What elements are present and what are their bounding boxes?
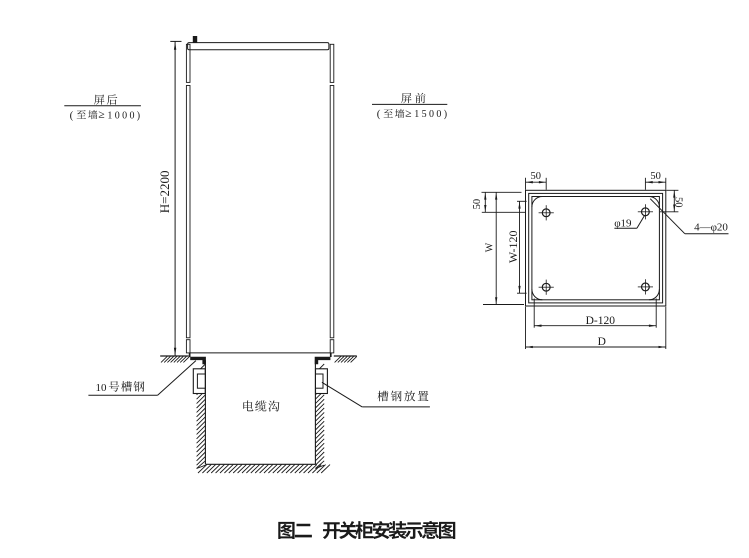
svg-text:φ19: φ19 xyxy=(614,217,632,229)
svg-text:50: 50 xyxy=(673,197,684,208)
svg-text:D-120: D-120 xyxy=(586,315,616,327)
svg-text:1000): 1000) xyxy=(107,110,142,121)
svg-text:4—φ20: 4—φ20 xyxy=(694,221,728,233)
svg-text:50: 50 xyxy=(472,199,483,210)
svg-text:≥: ≥ xyxy=(98,109,104,121)
svg-text:D: D xyxy=(598,336,606,348)
svg-text:W: W xyxy=(484,242,495,252)
svg-text:10: 10 xyxy=(96,382,108,394)
svg-text:(: ( xyxy=(377,108,381,120)
svg-text:≥: ≥ xyxy=(405,108,411,120)
svg-text:50: 50 xyxy=(650,171,661,182)
svg-text:50: 50 xyxy=(531,171,542,182)
svg-text:(: ( xyxy=(70,109,74,121)
svg-text:H=2200: H=2200 xyxy=(157,171,172,214)
svg-text:1500): 1500) xyxy=(414,109,449,120)
svg-text:W-120: W-120 xyxy=(506,230,520,263)
